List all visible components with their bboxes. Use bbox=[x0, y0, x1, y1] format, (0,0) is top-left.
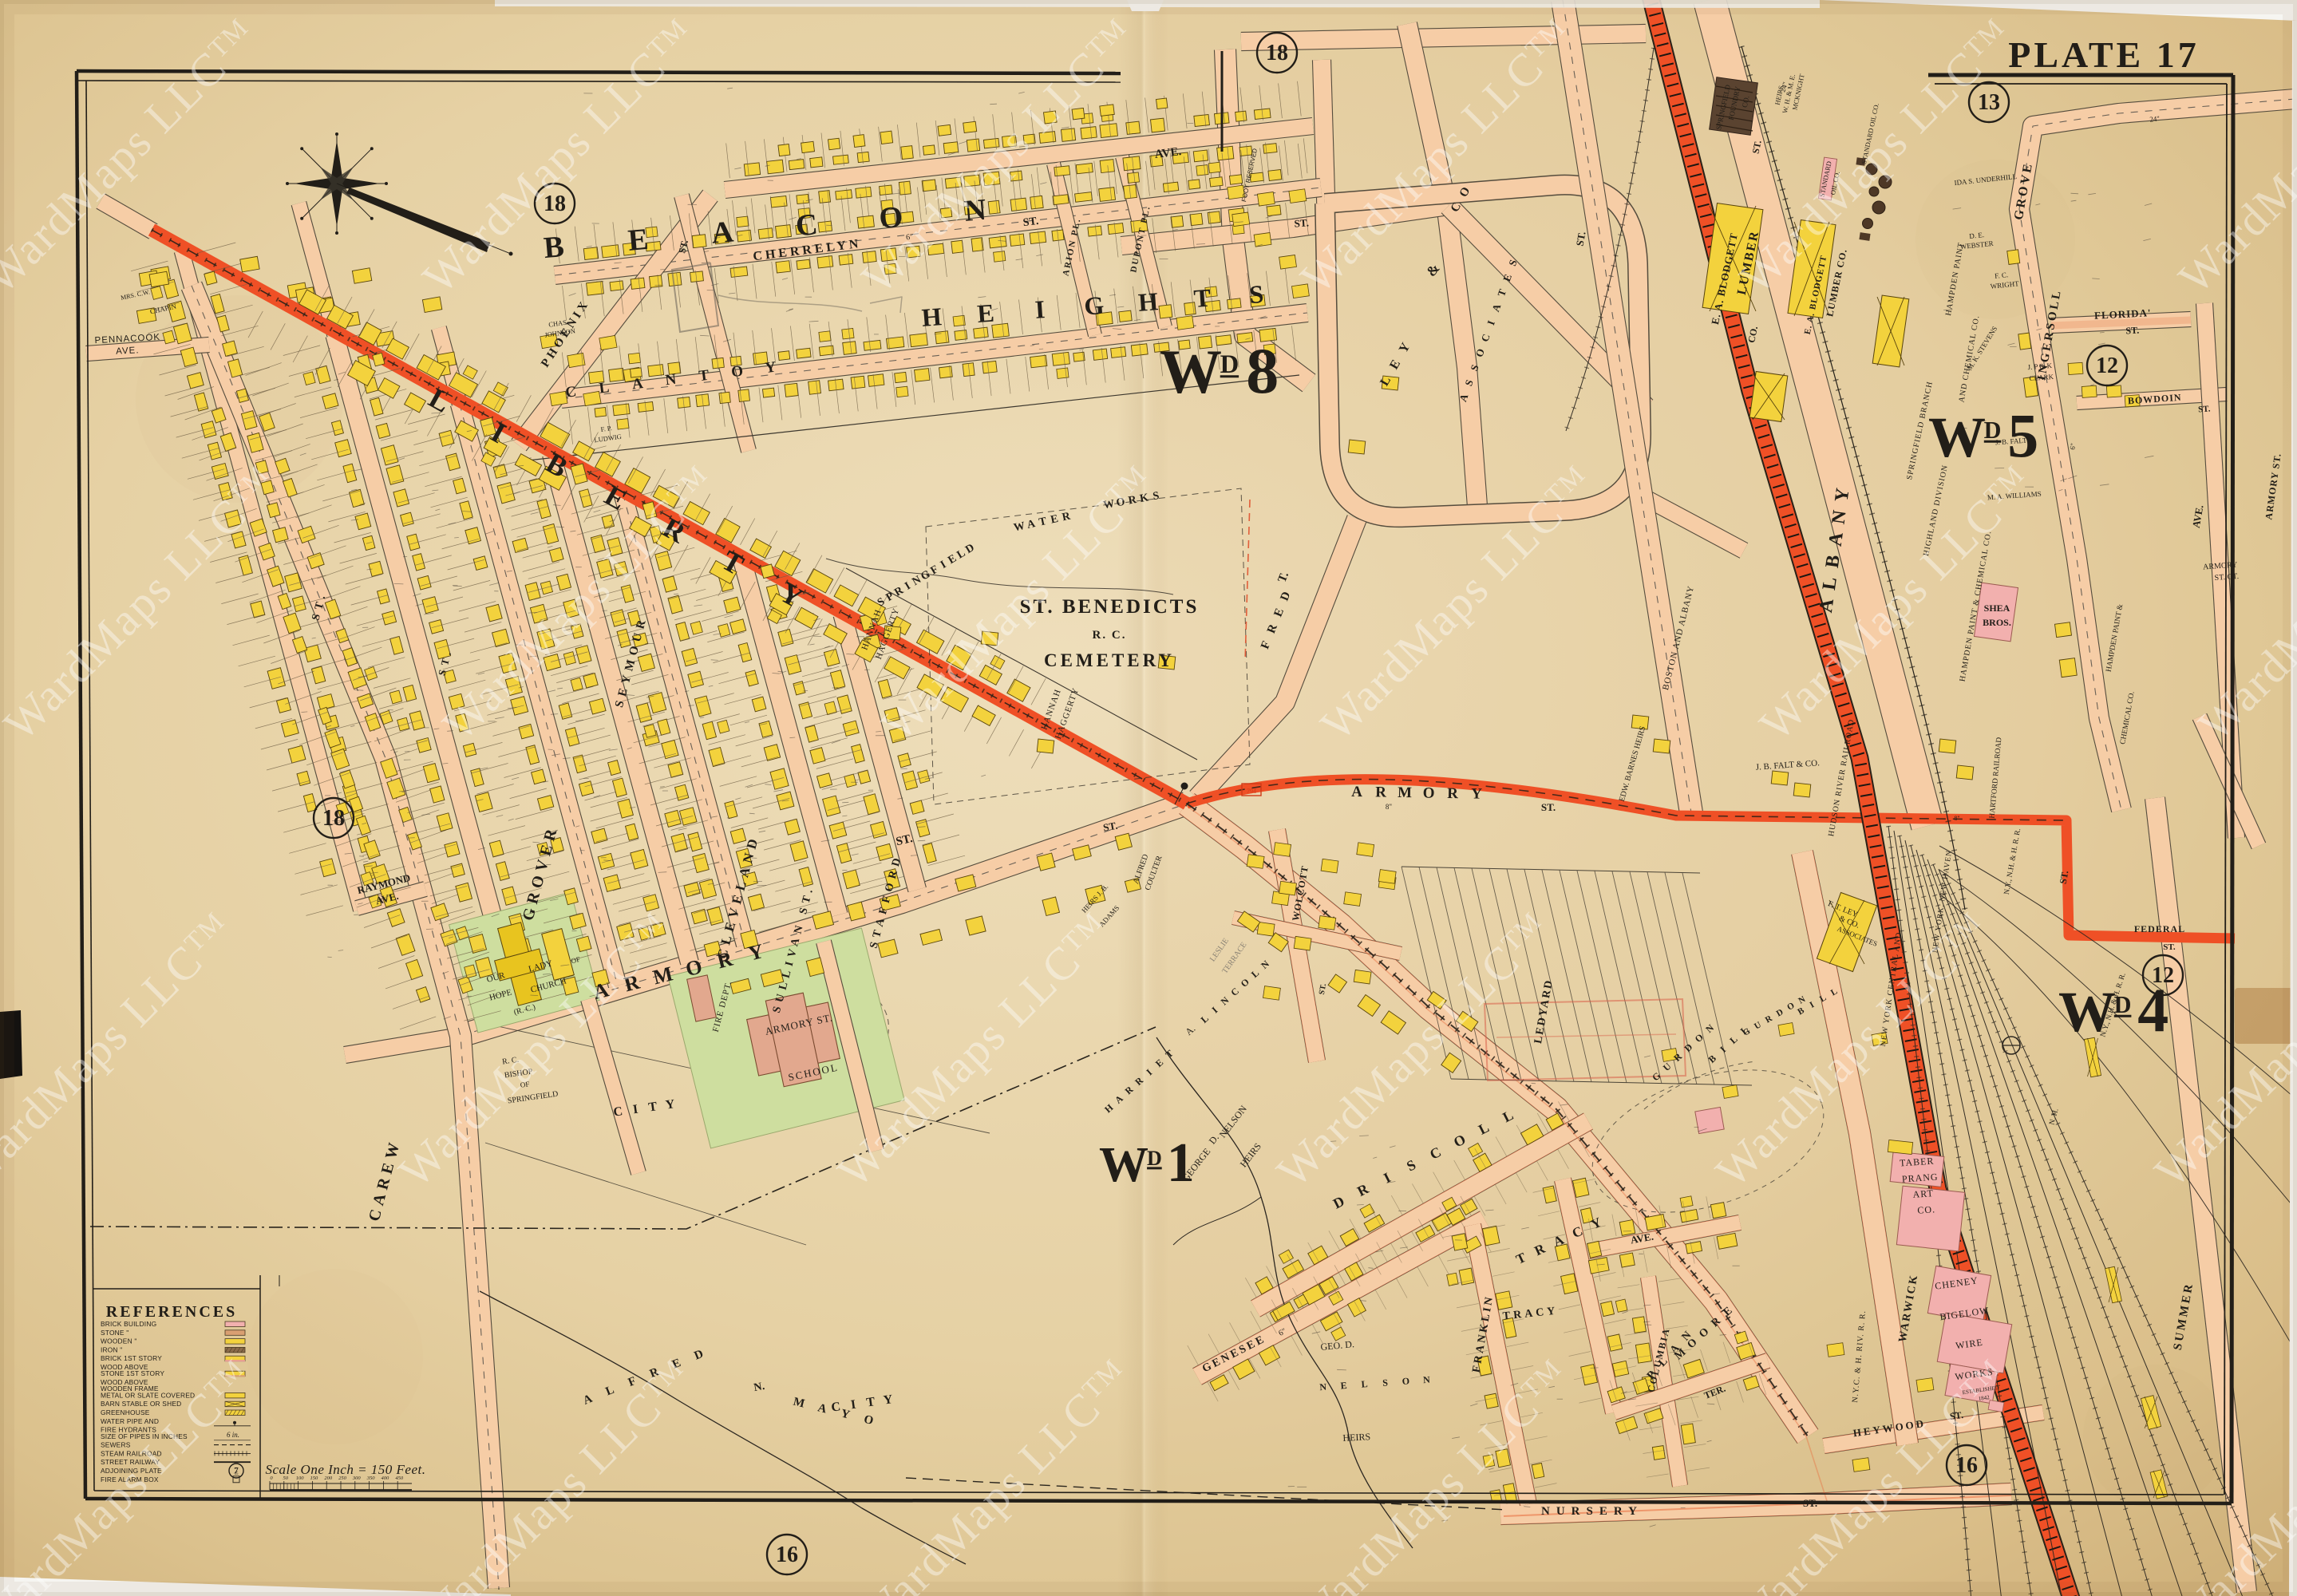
svg-text:12: 12 bbox=[2152, 963, 2174, 988]
svg-text:E: E bbox=[627, 223, 650, 258]
svg-text:ST.: ST. bbox=[2163, 942, 2176, 952]
svg-text:BROS.: BROS. bbox=[1983, 617, 2011, 628]
svg-text:M: M bbox=[1398, 784, 1412, 801]
svg-text:BRICK BUILDING: BRICK BUILDING bbox=[101, 1320, 156, 1328]
svg-text:SEWERS: SEWERS bbox=[101, 1441, 131, 1449]
svg-text:F. C.: F. C. bbox=[1995, 271, 2009, 280]
svg-text:FEDERAL: FEDERAL bbox=[2134, 923, 2185, 934]
svg-text:H: H bbox=[1137, 286, 1159, 317]
svg-text:D. E.: D. E. bbox=[1969, 231, 1985, 240]
svg-text:8": 8" bbox=[1386, 803, 1393, 811]
svg-text:5: 5 bbox=[2007, 401, 2038, 470]
svg-text:BRICK 1ST STORY: BRICK 1ST STORY bbox=[101, 1354, 162, 1362]
svg-text:50: 50 bbox=[283, 1476, 289, 1481]
svg-text:L: L bbox=[598, 379, 610, 397]
svg-text:C: C bbox=[794, 207, 819, 243]
svg-text:STONE 1ST STORY: STONE 1ST STORY bbox=[101, 1369, 164, 1377]
svg-text:GREENHOUSE: GREENHOUSE bbox=[101, 1408, 150, 1416]
svg-text:STONE ": STONE " bbox=[101, 1329, 128, 1337]
svg-text:R. C.: R. C. bbox=[1093, 629, 1127, 642]
svg-text:8: 8 bbox=[1246, 334, 1279, 407]
svg-text:D: D bbox=[1220, 350, 1239, 379]
svg-text:R: R bbox=[1447, 785, 1458, 802]
svg-text:T: T bbox=[1193, 283, 1212, 313]
svg-text:A: A bbox=[1351, 784, 1362, 800]
svg-text:A: A bbox=[631, 375, 644, 393]
svg-text:IRON ": IRON " bbox=[101, 1345, 122, 1353]
svg-text:N: N bbox=[1319, 1381, 1327, 1393]
svg-text:12: 12 bbox=[2096, 354, 2118, 378]
svg-text:ST.: ST. bbox=[1102, 820, 1119, 834]
svg-text:ST.: ST. bbox=[2198, 404, 2211, 414]
svg-text:ST.: ST. bbox=[2125, 325, 2140, 337]
svg-text:BARN STABLE OR SHED: BARN STABLE OR SHED bbox=[101, 1400, 181, 1408]
svg-text:O: O bbox=[1423, 784, 1435, 801]
svg-text:E: E bbox=[1340, 1380, 1347, 1392]
svg-text:ST.: ST. bbox=[1022, 215, 1039, 229]
svg-text:Y: Y bbox=[1471, 785, 1482, 802]
svg-text:WATER PIPE AND: WATER PIPE AND bbox=[101, 1417, 159, 1425]
svg-text:16: 16 bbox=[1955, 1453, 1978, 1478]
svg-text:G: G bbox=[1083, 290, 1105, 321]
svg-text:CO.: CO. bbox=[1917, 1203, 1936, 1216]
svg-text:HEIRS: HEIRS bbox=[1342, 1431, 1370, 1444]
svg-text:N.: N. bbox=[753, 1381, 765, 1394]
svg-text:S: S bbox=[1382, 1377, 1389, 1388]
svg-text:W: W bbox=[1928, 405, 1986, 469]
svg-text:C: C bbox=[612, 1104, 623, 1119]
svg-text:WOODEN ": WOODEN " bbox=[101, 1337, 137, 1345]
svg-text:C: C bbox=[564, 383, 577, 401]
svg-text:E: E bbox=[976, 298, 995, 328]
svg-text:13: 13 bbox=[1978, 90, 2000, 115]
svg-text:REFERENCES: REFERENCES bbox=[106, 1303, 237, 1321]
svg-text:ST.: ST. bbox=[1541, 801, 1556, 813]
svg-text:Y: Y bbox=[764, 359, 777, 377]
svg-text:300: 300 bbox=[352, 1476, 362, 1481]
svg-text:PLATE 17: PLATE 17 bbox=[2008, 34, 2199, 75]
svg-text:O: O bbox=[1402, 1375, 1409, 1387]
svg-text:ART: ART bbox=[1912, 1187, 1934, 1200]
svg-text:A: A bbox=[710, 215, 736, 250]
svg-text:400: 400 bbox=[382, 1476, 390, 1481]
svg-text:NURSERY: NURSERY bbox=[1541, 1505, 1643, 1518]
svg-text:W: W bbox=[1099, 1138, 1148, 1192]
svg-text:250: 250 bbox=[338, 1476, 347, 1481]
svg-text:794: 794 bbox=[1247, 788, 1256, 795]
svg-text:N: N bbox=[1423, 1374, 1431, 1386]
svg-text:100: 100 bbox=[296, 1476, 305, 1481]
svg-text:SHEA: SHEA bbox=[1984, 602, 2010, 614]
svg-text:CEMETERY: CEMETERY bbox=[1044, 650, 1175, 670]
svg-text:24": 24" bbox=[2149, 114, 2161, 123]
svg-text:D: D bbox=[1147, 1147, 1162, 1170]
svg-text:O: O bbox=[730, 363, 744, 381]
svg-text:H: H bbox=[921, 302, 943, 332]
svg-text:I: I bbox=[1034, 294, 1046, 324]
svg-text:ST.: ST. bbox=[2058, 870, 2071, 885]
svg-text:L: L bbox=[1361, 1378, 1368, 1390]
svg-text:65: 65 bbox=[235, 1472, 239, 1476]
svg-text:450: 450 bbox=[395, 1476, 404, 1481]
svg-text:18: 18 bbox=[322, 806, 345, 831]
svg-text:6 in.: 6 in. bbox=[227, 1431, 239, 1439]
svg-text:ST.: ST. bbox=[1294, 216, 1309, 229]
svg-text:350: 350 bbox=[366, 1476, 376, 1481]
svg-text:N: N bbox=[664, 371, 677, 389]
svg-text:R: R bbox=[1375, 784, 1386, 800]
svg-text:Y: Y bbox=[1831, 487, 1853, 504]
svg-text:S: S bbox=[1248, 279, 1264, 309]
svg-text:200: 200 bbox=[324, 1476, 333, 1481]
svg-text:18: 18 bbox=[1266, 41, 1288, 65]
svg-text:AVE.: AVE. bbox=[116, 346, 140, 357]
svg-text:W: W bbox=[1160, 337, 1222, 406]
svg-text:8": 8" bbox=[1954, 815, 1959, 822]
svg-text:B: B bbox=[542, 230, 565, 265]
svg-text:16: 16 bbox=[776, 1543, 798, 1567]
svg-text:150: 150 bbox=[310, 1476, 319, 1481]
svg-text:ST.: ST. bbox=[1574, 231, 1588, 247]
svg-text:C: C bbox=[830, 1400, 841, 1414]
svg-text:F. P.: F. P. bbox=[600, 424, 612, 433]
